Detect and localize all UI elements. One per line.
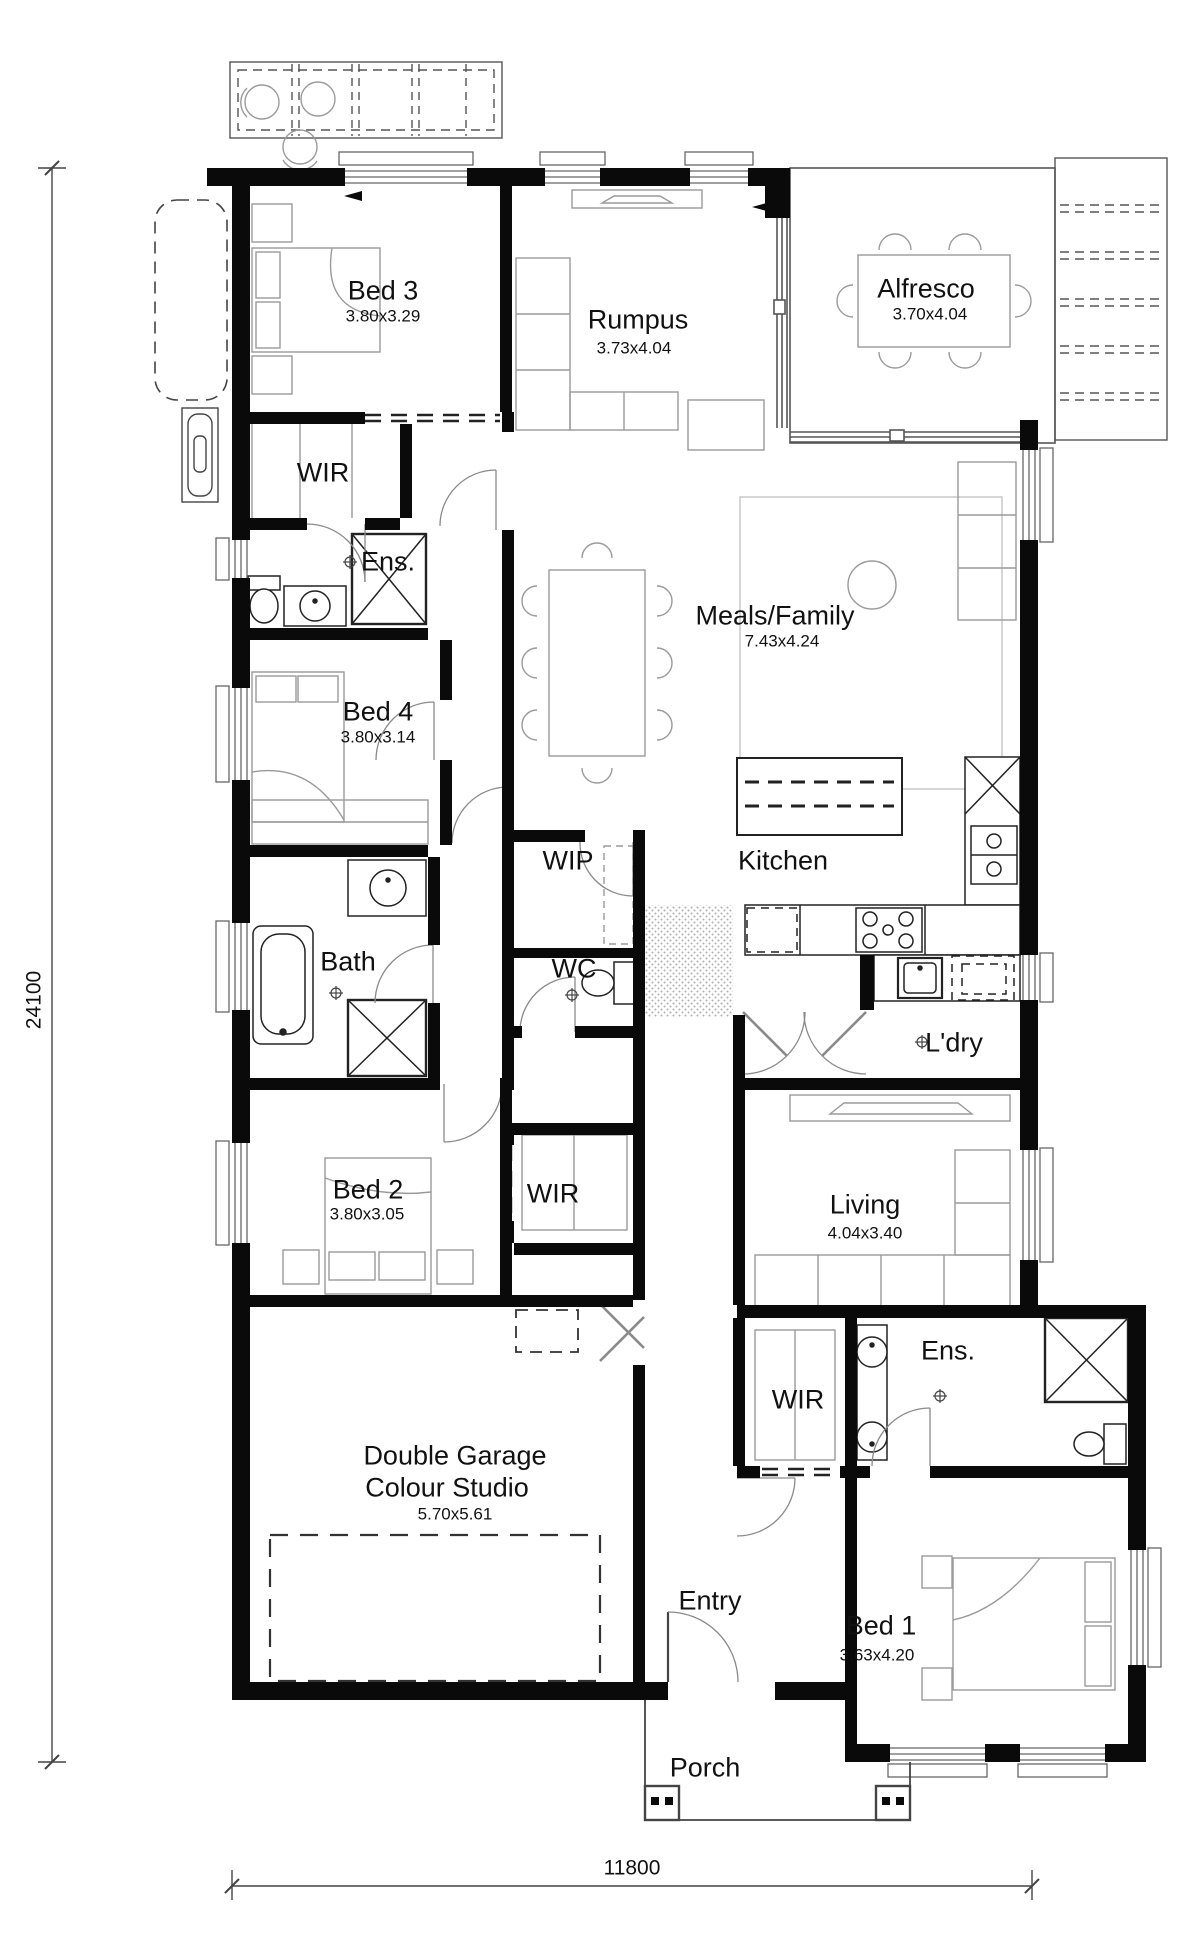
room-label-bed2: Bed 2 [333,1177,404,1204]
room-label-wir-bed3: WIR [297,460,349,487]
room-label-bed1: Bed 1 [846,1613,917,1640]
room-dims-bed2: 3.80x3.05 [330,1206,405,1223]
room-dims-rumpus: 3.73x4.04 [597,340,672,357]
room-label-porch: Porch [670,1755,741,1782]
floor-plan-page: Bed 3 3.80x3.29 WIR Ens. Rumpus 3.73x4.0… [0,0,1202,1959]
overall-depth-dimension: 24100 [24,971,45,1029]
room-label-entry: Entry [678,1588,741,1615]
room-dims-garage: 5.70x5.61 [418,1506,493,1523]
room-dims-bed1: 3.63x4.20 [840,1647,915,1664]
room-label-living: Living [830,1192,901,1219]
room-label-alfresco: Alfresco [877,276,975,303]
room-label-kitchen: Kitchen [738,848,828,875]
laundry-sink-icon [898,958,942,998]
floor-plan-drawing [0,0,1202,1959]
room-label-wip: WIP [543,848,594,875]
room-label-garage-line1: Double Garage [363,1443,546,1470]
shower-icon [348,1000,426,1076]
laundry-bench [874,955,1020,1001]
room-label-wc: WC [552,956,597,983]
room-dims-bed4: 3.80x3.14 [341,729,416,746]
room-label-wir-bed1: WIR [772,1387,824,1414]
room-dims-alfresco: 3.70x4.04 [893,306,968,323]
toilet-icon [248,576,280,590]
room-label-ens-bed3: Ens. [361,549,415,576]
bathtub-icon [253,926,313,1044]
room-label-meals-family: Meals/Family [695,603,854,630]
room-label-bed3: Bed 3 [348,278,419,305]
room-label-laundry: L'dry [925,1030,983,1057]
room-label-garage-line2: Colour Studio [365,1475,529,1502]
room-label-ens-bed1: Ens. [921,1338,975,1365]
room-dims-meals-family: 7.43x4.24 [745,633,820,650]
room-label-wir-bed2: WIR [527,1181,579,1208]
room-dims-living: 4.04x3.40 [828,1225,903,1242]
overall-width-dimension: 11800 [604,1858,661,1879]
room-label-rumpus: Rumpus [588,307,689,334]
room-label-bath: Bath [320,949,376,976]
tiled-hall-floor [645,905,733,1017]
room-dims-bed3: 3.80x3.29 [346,308,421,325]
cooktop-icon [856,908,922,952]
shower-icon [1045,1318,1128,1402]
kitchen-island [737,758,902,835]
room-label-bed4: Bed 4 [343,699,414,726]
